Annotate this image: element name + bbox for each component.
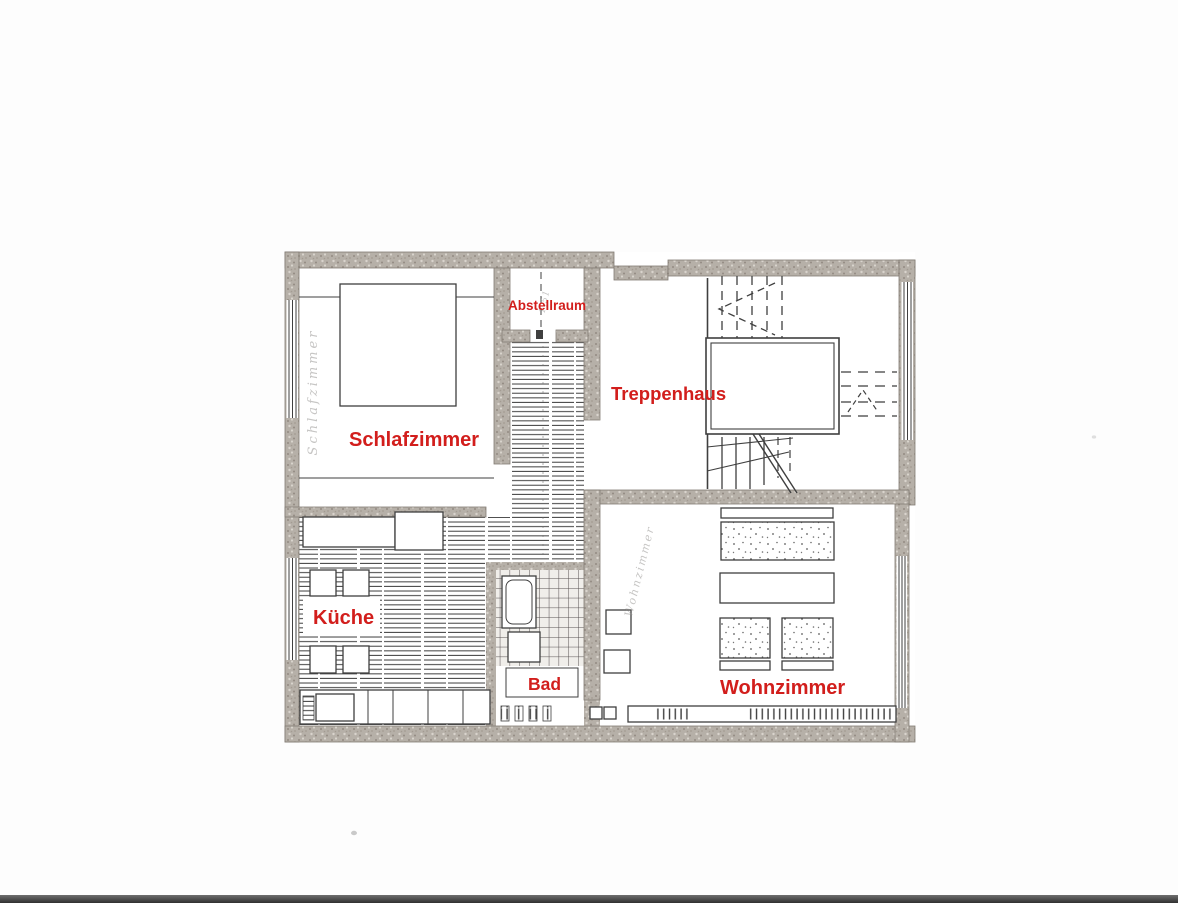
- apartment-plan: Schlafzimmer 1,51: [285, 252, 1096, 835]
- bathroom: [486, 562, 600, 726]
- room-label-kueche: Küche: [313, 607, 374, 629]
- room-label-abstellraum: Abstellraum: [508, 298, 586, 313]
- wall-top-left: [285, 252, 614, 268]
- door-threshold: [590, 707, 602, 719]
- livingroom-window: [897, 556, 908, 708]
- bedroom-window: [287, 300, 299, 418]
- wall-storage-stub-left: [502, 330, 530, 342]
- wall-bottom: [285, 726, 915, 742]
- armchair-footrest: [720, 661, 770, 670]
- armchair-footrest: [782, 661, 833, 670]
- armchair-icon: [720, 618, 770, 658]
- storage-door-pivot: [536, 330, 543, 339]
- door-threshold: [604, 707, 616, 719]
- kitchen-sink-icon: [316, 694, 354, 721]
- wall-stairwell-left: [584, 268, 600, 420]
- bed-icon: [340, 284, 456, 406]
- sofa-icon: [721, 522, 834, 560]
- room-label-schlafzimmer: Schlafzimmer: [349, 429, 479, 451]
- kitchen-appliance: [343, 646, 369, 673]
- wall-corridor-right: [584, 490, 600, 700]
- room-label-wohnzimmer: Wohnzimmer: [720, 677, 845, 699]
- kitchen-appliance: [310, 646, 336, 673]
- wall-storage-stub-right: [556, 330, 588, 342]
- wall-top-notch: [614, 266, 668, 280]
- stairwell-window: [902, 282, 914, 440]
- kitchen-island: [395, 512, 443, 550]
- room-label-treppenhaus: Treppenhaus: [611, 383, 726, 404]
- wall-kitchen-divider: [285, 507, 486, 517]
- pencil-annotation-bedroom: Schlafzimmer: [306, 329, 321, 456]
- wall-top-right: [668, 260, 915, 276]
- room-label-bad: Bad: [528, 674, 561, 694]
- scan-speck: [1092, 435, 1096, 438]
- wall-livingroom-top: [586, 490, 909, 504]
- kitchen-bottom-counter-row: [300, 690, 490, 724]
- toilet-icon: [508, 632, 540, 662]
- kitchen-radiator-icon: [303, 696, 314, 720]
- scan-edge-bar: [0, 895, 1178, 903]
- armchair-icon: [782, 618, 833, 658]
- scanned-floor-plan-page: Schlafzimmer 1,51: [0, 0, 1178, 903]
- sideboard-icon: [721, 508, 833, 518]
- kitchen-counter: [303, 517, 395, 547]
- table-icon: [720, 573, 834, 603]
- kitchen-appliance: [310, 570, 336, 596]
- kitchen-window: [287, 558, 299, 660]
- side-table-icon: [604, 650, 630, 673]
- kitchen-appliance: [343, 570, 369, 596]
- livingroom-radiator-icon: [628, 706, 896, 722]
- scan-speck: [351, 831, 357, 835]
- floor-plan-drawing: Schlafzimmer 1,51: [0, 0, 1178, 903]
